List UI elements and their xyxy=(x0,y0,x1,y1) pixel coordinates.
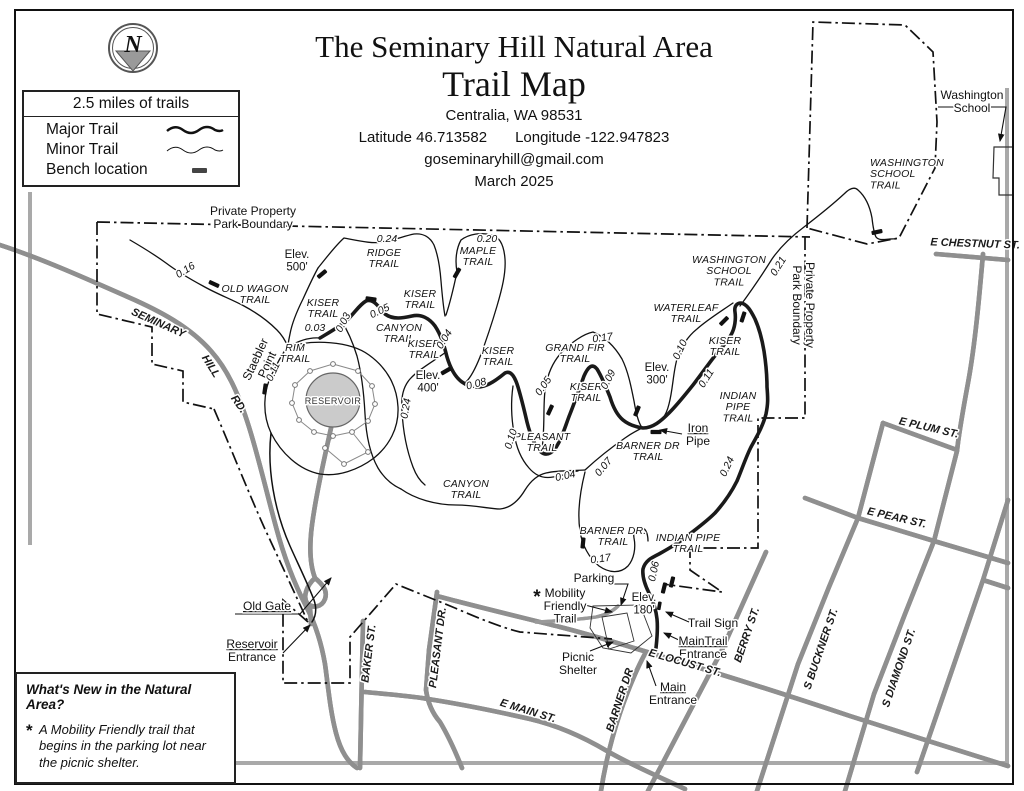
legend-scale-note: 2.5 miles of trails xyxy=(24,92,238,117)
page-subtitle: Trail Map xyxy=(240,64,788,105)
major-trail-icon xyxy=(164,123,226,137)
whats-new-heading: What's New in the Natural Area? xyxy=(26,682,226,712)
latlong-line: Latitude 46.713582Longitude -122.947823 xyxy=(240,127,788,149)
legend-label: Bench location xyxy=(46,161,186,179)
email: goseminaryhill@gmail.com xyxy=(240,149,788,171)
north-letter: N xyxy=(123,32,143,58)
page-title: The Seminary Hill Natural Area xyxy=(240,30,788,64)
whats-new-box: What's New in the Natural Area? * A Mobi… xyxy=(15,672,236,784)
asterisk-marker: * xyxy=(26,720,33,741)
trail-map-page: Private PropertyPark BoundaryPrivate Pro… xyxy=(0,0,1024,791)
north-arrow-icon: N xyxy=(103,19,163,79)
legend-item-major-trail: Major Trail xyxy=(24,120,238,140)
legend-item-minor-trail: Minor Trail xyxy=(24,140,238,160)
legend-box: 2.5 miles of trails Major Trail Minor Tr… xyxy=(22,90,240,187)
legend-label: Major Trail xyxy=(46,121,164,139)
whats-new-text: A Mobility Friendly trail that begins in… xyxy=(39,722,206,770)
minor-trail-icon xyxy=(164,143,226,157)
legend-label: Minor Trail xyxy=(46,141,164,159)
legend-item-bench: Bench location xyxy=(24,160,238,180)
bench-icon xyxy=(186,164,216,176)
longitude: Longitude -122.947823 xyxy=(515,129,669,146)
whats-new-body: * A Mobility Friendly trail that begins … xyxy=(26,722,226,771)
title-block: The Seminary Hill Natural Area Trail Map… xyxy=(240,30,788,192)
latitude: Latitude 46.713582 xyxy=(359,129,487,146)
map-date: March 2025 xyxy=(240,171,788,193)
city-line: Centralia, WA 98531 xyxy=(240,105,788,127)
